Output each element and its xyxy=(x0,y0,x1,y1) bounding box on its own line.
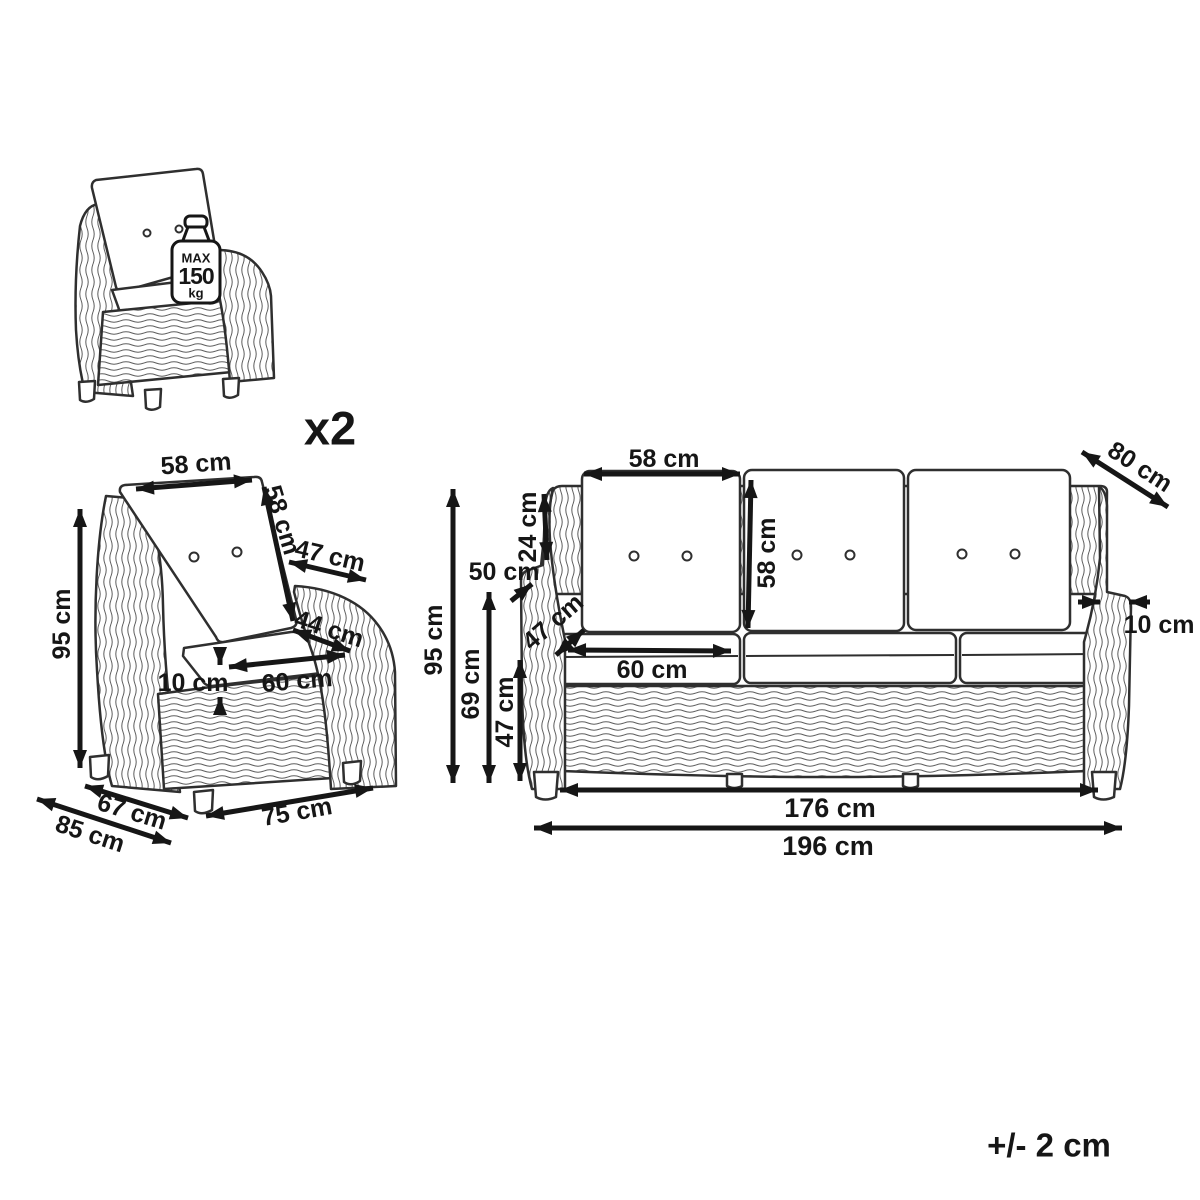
chair-thumb-foot xyxy=(79,381,95,402)
sofa-seat-height-dimension: 47 cm xyxy=(491,660,520,781)
sofa-seat-cushion xyxy=(744,633,956,683)
chair-total-width-label: 75 cm xyxy=(260,792,335,832)
sofa-foot xyxy=(903,774,918,788)
cushion-button xyxy=(1011,550,1020,559)
sofa-total-width-dimension: 196 cm xyxy=(534,828,1122,861)
product-dimension-sheet: MAX 150 kg x2 58 cm 58 cm 47 cm xyxy=(0,0,1200,1200)
chair-total-height-label: 95 cm xyxy=(48,589,76,660)
sofa-armrest-width-label: 10 cm xyxy=(1124,611,1195,639)
sofa-foot xyxy=(1092,772,1116,800)
cushion-button xyxy=(793,551,802,560)
weight-limit-unit: kg xyxy=(188,286,203,301)
sofa-armrest-height-label: 50 cm xyxy=(469,558,540,586)
cushion-button xyxy=(958,550,967,559)
sofa-backrest-height-label: 69 cm xyxy=(457,649,485,720)
cushion-button xyxy=(144,230,151,237)
cushion-button xyxy=(176,226,183,233)
sofa-cushion-width-dimension: 58 cm xyxy=(584,445,740,474)
sofa-foot xyxy=(534,772,558,800)
sofa-total-height-dimension: 95 cm xyxy=(420,489,453,783)
cushion-button xyxy=(190,553,199,562)
chair-foot xyxy=(90,755,109,779)
sofa-total-height-label: 95 cm xyxy=(420,605,448,676)
sofa-back-cushion xyxy=(908,470,1070,630)
sofa-backrest-top-label: 24 cm xyxy=(514,492,542,563)
sofa-cushion-height-label: 58 cm xyxy=(753,518,781,589)
sofa-seat-width-label: 60 cm xyxy=(617,656,688,684)
sofa-inner-width-label: 176 cm xyxy=(784,793,876,823)
cushion-button xyxy=(683,552,692,561)
chair-armrest-length-dimension: 47 cm xyxy=(289,534,368,580)
chair-thumb-foot xyxy=(223,378,239,398)
chair-total-width-dimension: 75 cm xyxy=(206,788,373,832)
tolerance-note: +/- 2 cm xyxy=(987,1127,1111,1164)
chair-cushion-thickness-label: 10 cm xyxy=(158,669,229,697)
sofa-back-cushion xyxy=(582,471,740,632)
sofa-seat-cushion xyxy=(960,633,1095,683)
sofa-cushion-width-label: 58 cm xyxy=(629,445,700,473)
sofa-dimension-diagram: 58 cm 80 cm 24 cm 50 cm 95 cm 69 cm 47 c… xyxy=(420,436,1194,861)
chair-total-height-dimension: 95 cm xyxy=(48,509,80,768)
chair-thumbnail: MAX 150 kg xyxy=(76,169,275,410)
sofa-total-width-label: 196 cm xyxy=(782,831,874,861)
sofa-backrest-height-dimension: 69 cm xyxy=(457,592,489,783)
chair-thumb-base xyxy=(98,300,232,385)
cushion-button xyxy=(233,548,242,557)
chair-back-width-label: 58 cm xyxy=(160,448,233,481)
chair-foot xyxy=(194,790,213,813)
chair-dimension-diagram: 58 cm 58 cm 47 cm 44 cm 60 cm 10 cm 95 c… xyxy=(37,448,396,859)
dimension-diagram-canvas: MAX 150 kg x2 58 cm 58 cm 47 cm xyxy=(0,0,1200,1200)
sofa-seat-height-label: 47 cm xyxy=(491,677,519,748)
sofa-foot xyxy=(727,774,742,788)
quantity-label: x2 xyxy=(304,402,356,455)
cushion-button xyxy=(846,551,855,560)
sofa-base xyxy=(538,686,1112,777)
chair-thumb-foot xyxy=(145,389,161,410)
cushion-button xyxy=(630,552,639,561)
chair-foot xyxy=(343,761,361,784)
sofa-inner-width-dimension: 176 cm xyxy=(560,790,1098,823)
